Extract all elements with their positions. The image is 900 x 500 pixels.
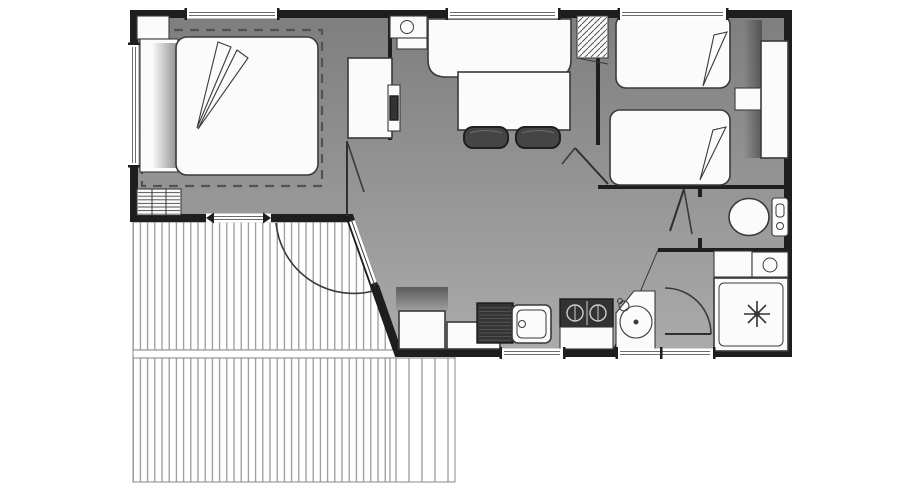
window-twin-north (618, 8, 729, 20)
worktop-shadow (396, 287, 448, 313)
hob-front (560, 327, 613, 349)
window-living-north (446, 8, 561, 20)
toilet-bowl (729, 199, 769, 236)
window-bathroom-south (616, 347, 716, 359)
washbasin-cabinet (752, 252, 788, 277)
sink-bowl (512, 305, 551, 343)
water-heater-body (390, 16, 427, 38)
floor-plan-page (0, 0, 900, 500)
window-master-south (206, 213, 271, 224)
tv-cabinet (348, 58, 392, 138)
basin-drain (634, 320, 639, 325)
window-kitchen-south (500, 347, 566, 359)
bench-sofa (428, 19, 571, 77)
headboard-shadow (152, 43, 179, 168)
water-heater-shelf (397, 38, 427, 49)
dining-table (458, 72, 570, 130)
sink-unit (477, 303, 551, 343)
drawers-unit (137, 189, 181, 215)
wardrobe (761, 41, 788, 158)
corner-cabinet (137, 16, 169, 39)
draining-board-ribs (479, 305, 511, 341)
window-master-west (128, 43, 140, 168)
base-unit-1 (399, 311, 445, 349)
storage-shelves (577, 16, 608, 64)
lower-deck-right-planks (390, 358, 455, 482)
window-master-north (185, 8, 280, 20)
bedside-shelf (735, 88, 762, 110)
storage-cabinet (714, 251, 752, 277)
floor-plan-canvas (0, 0, 900, 500)
hob (560, 299, 613, 349)
storage-shelves-hatch (578, 17, 607, 57)
drawers-hatch (138, 190, 180, 214)
wall-tv (390, 96, 398, 120)
lower-deck-planks (133, 358, 390, 482)
